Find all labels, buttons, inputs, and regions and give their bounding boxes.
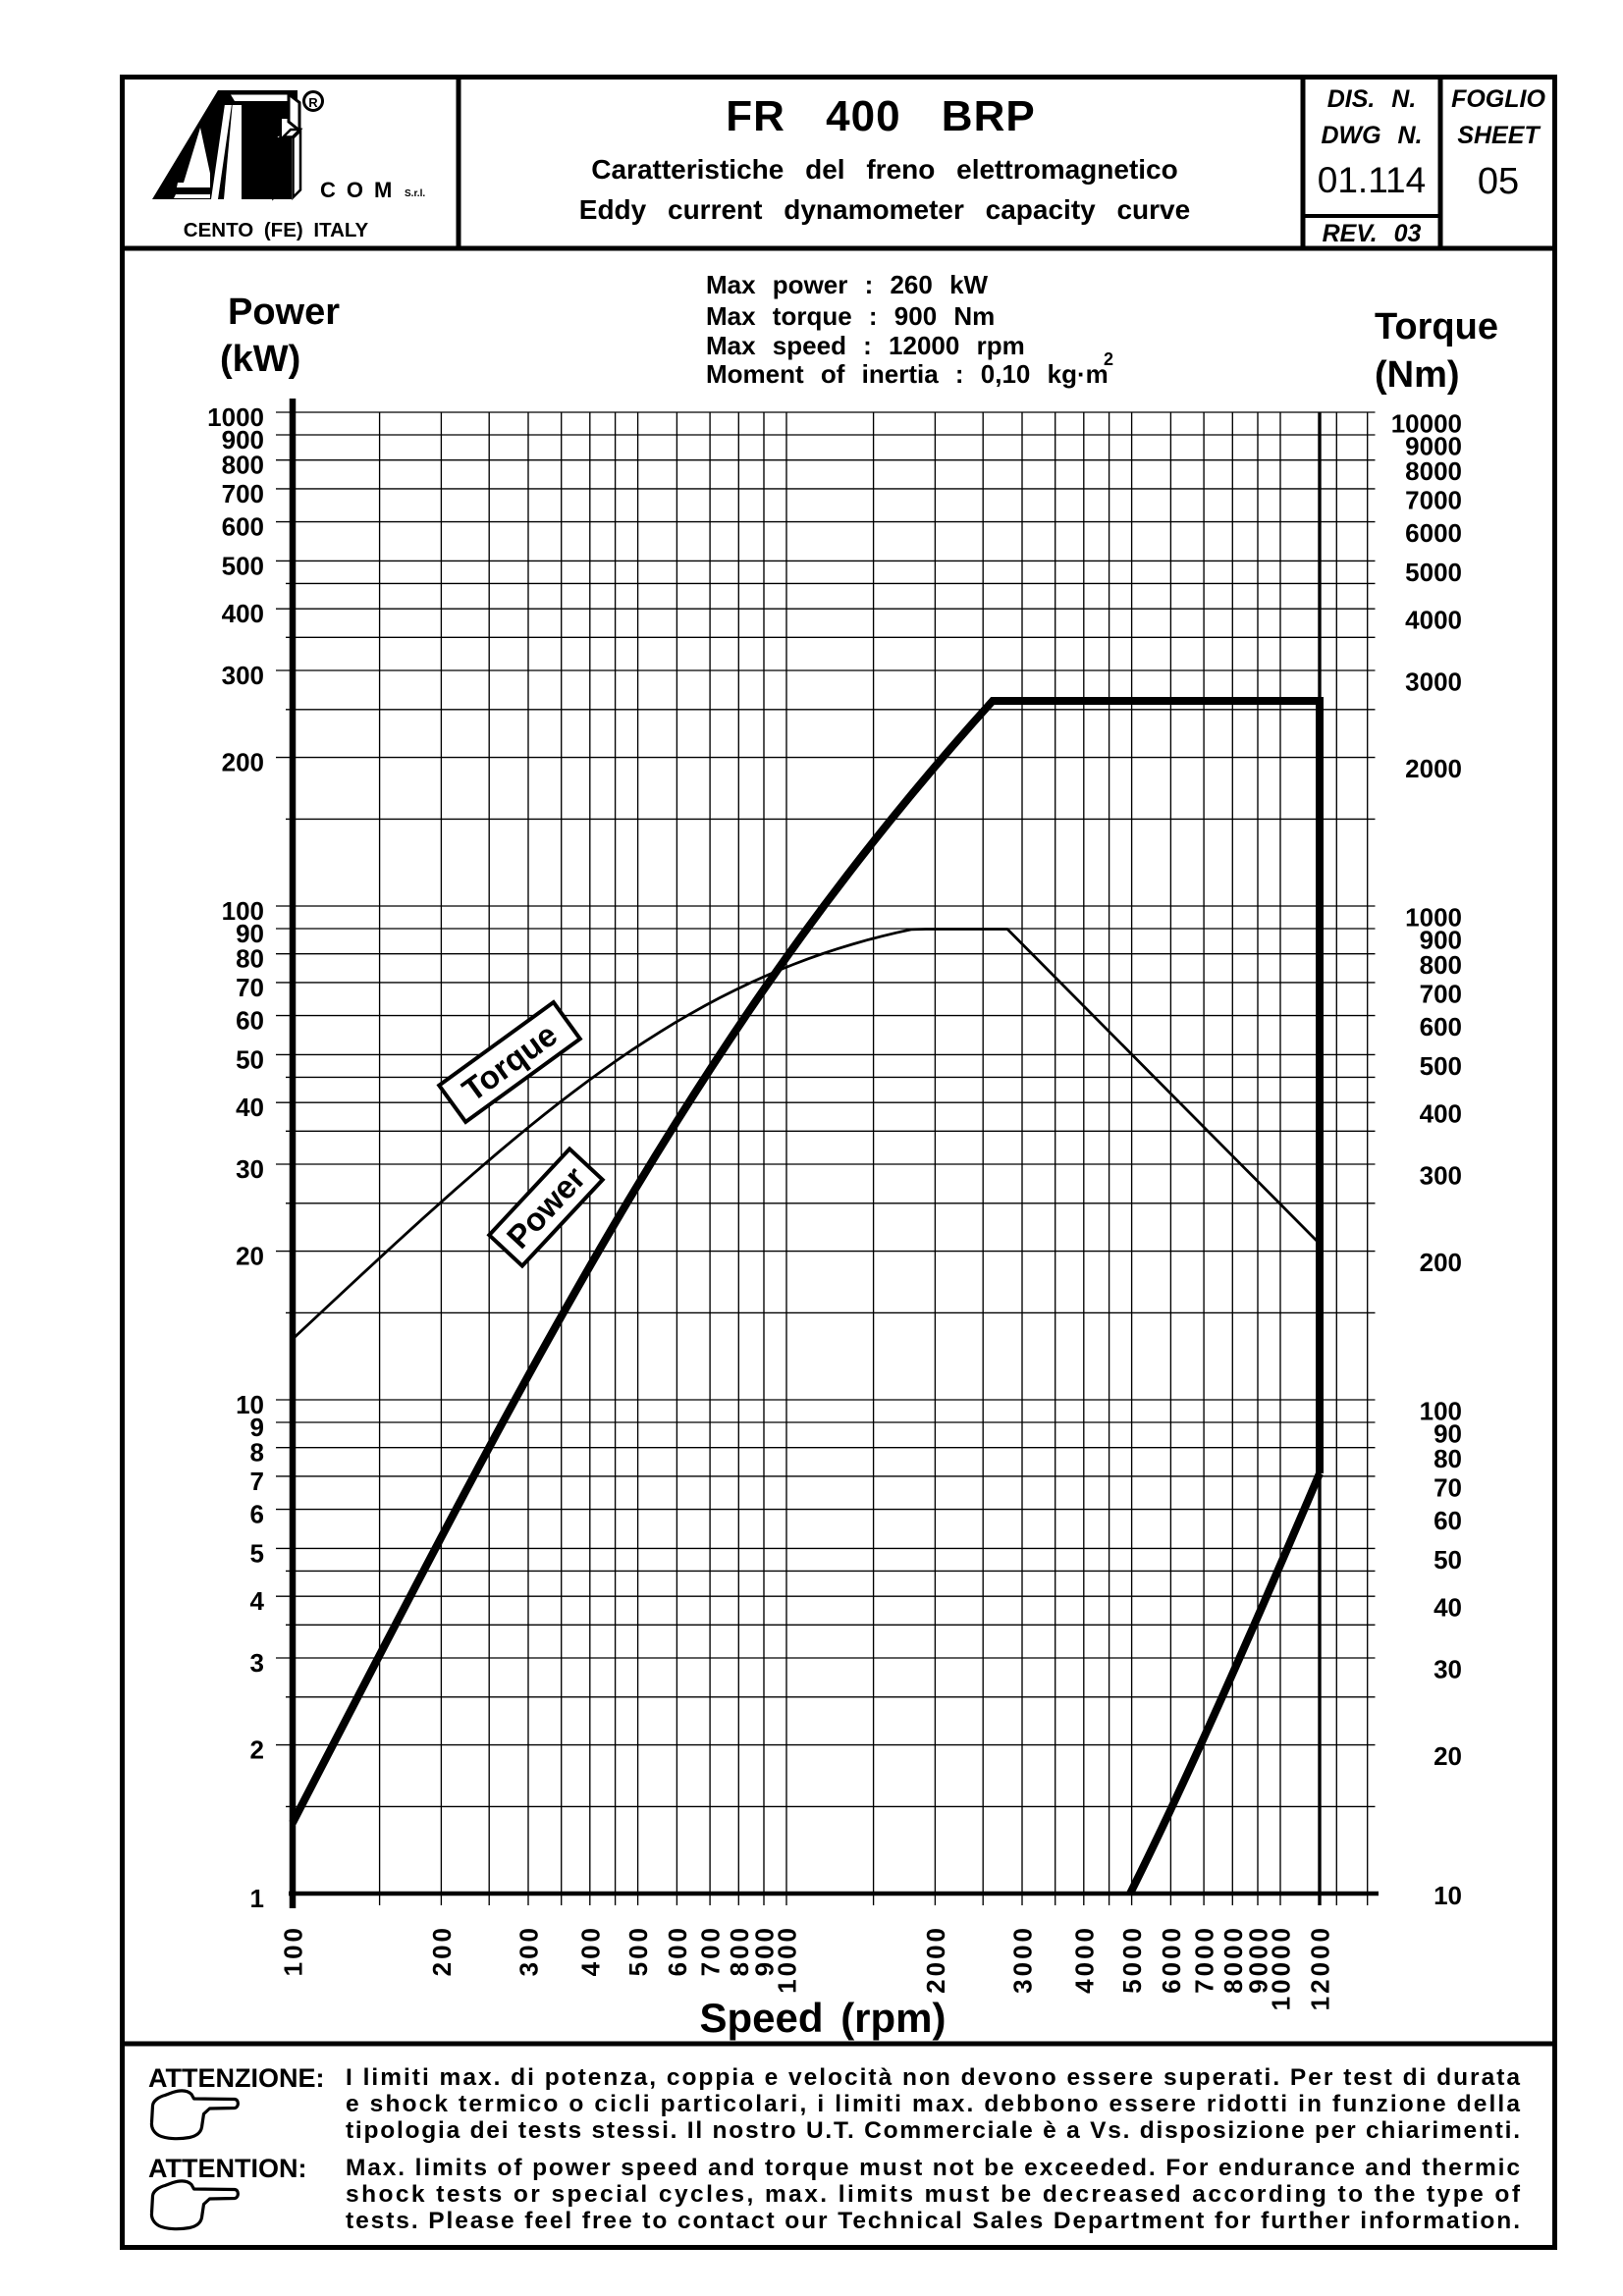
svg-text:20: 20 — [1434, 1741, 1462, 1771]
svg-text:SHEET: SHEET — [1457, 122, 1542, 149]
svg-text:2000: 2000 — [1405, 754, 1462, 783]
svg-text:Max torque : 900 Nm: Max torque : 900 Nm — [706, 301, 995, 331]
svg-text:Eddy current dynamometer capac: Eddy current dynamometer capacity curve — [579, 194, 1190, 225]
svg-text:70: 70 — [1434, 1472, 1462, 1502]
svg-text:700: 700 — [222, 479, 264, 508]
svg-text:80: 80 — [236, 944, 264, 974]
svg-text:50: 50 — [236, 1044, 264, 1074]
svg-text:400: 400 — [222, 599, 264, 628]
svg-text:6000: 6000 — [1405, 518, 1462, 548]
svg-text:tipologia dei tests stessi. Il: tipologia dei tests stessi. Il nostro U.… — [346, 2117, 1520, 2144]
svg-text:Moment of inertia : 0,10 kg·m: Moment of inertia : 0,10 kg·m — [706, 359, 1109, 389]
svg-text:800: 800 — [1420, 950, 1462, 980]
svg-text:Speed (rpm): Speed (rpm) — [699, 1995, 946, 2041]
svg-text:200: 200 — [1420, 1248, 1462, 1277]
svg-text:ATTENTION:: ATTENTION: — [148, 2154, 306, 2183]
svg-text:60: 60 — [236, 1006, 264, 1036]
svg-text:80: 80 — [1434, 1444, 1462, 1473]
svg-text:3: 3 — [250, 1648, 264, 1678]
svg-text:200: 200 — [427, 1925, 457, 1976]
svg-text:30: 30 — [1434, 1655, 1462, 1684]
svg-text:1: 1 — [250, 1884, 264, 1913]
svg-text:e shock termico o cicli partic: e shock termico o cicli particolari, i l… — [346, 2091, 1520, 2117]
svg-text:500: 500 — [623, 1925, 653, 1976]
svg-text:600: 600 — [222, 512, 264, 542]
svg-text:60: 60 — [1434, 1506, 1462, 1535]
svg-text:10000: 10000 — [1267, 1925, 1296, 2010]
svg-text:FOGLIO: FOGLIO — [1451, 85, 1545, 113]
svg-text:Max power : 260 kW: Max power : 260 kW — [706, 270, 989, 299]
svg-text:2000: 2000 — [921, 1925, 950, 1994]
svg-text:(Nm): (Nm) — [1375, 354, 1460, 396]
svg-text:8: 8 — [250, 1438, 264, 1468]
svg-text:2: 2 — [1104, 349, 1113, 369]
svg-text:70: 70 — [236, 973, 264, 1002]
svg-text:7000: 7000 — [1190, 1925, 1219, 1994]
svg-text:I limiti max. di potenza, copp: I limiti max. di potenza, coppia e veloc… — [346, 2064, 1520, 2091]
svg-text:300: 300 — [514, 1925, 544, 1976]
svg-text:(kW): (kW) — [220, 339, 300, 380]
svg-text:5000: 5000 — [1117, 1925, 1147, 1994]
svg-text:Max speed : 12000 rpm: Max speed : 12000 rpm — [706, 331, 1025, 360]
svg-text:400: 400 — [1420, 1099, 1462, 1129]
svg-text:shock tests or special cycles,: shock tests or special cycles, max. limi… — [346, 2181, 1521, 2208]
svg-text:8000: 8000 — [1405, 456, 1462, 486]
svg-text:50: 50 — [1434, 1545, 1462, 1575]
svg-text:S.r.l.: S.r.l. — [405, 188, 425, 199]
svg-text:4: 4 — [250, 1586, 265, 1616]
svg-text:600: 600 — [663, 1925, 692, 1976]
svg-text:100: 100 — [279, 1925, 308, 1976]
svg-text:1000: 1000 — [773, 1925, 802, 1994]
svg-text:5000: 5000 — [1405, 558, 1462, 587]
svg-text:12000: 12000 — [1305, 1925, 1334, 2010]
svg-text:20: 20 — [236, 1242, 264, 1271]
svg-text:Torque: Torque — [1375, 306, 1498, 347]
svg-text:FR 400 BRP: FR 400 BRP — [726, 92, 1035, 140]
svg-text:3000: 3000 — [1008, 1925, 1038, 1994]
svg-text:600: 600 — [1420, 1012, 1462, 1041]
svg-text:40: 40 — [1434, 1593, 1462, 1623]
svg-text:REV. 03: REV. 03 — [1323, 220, 1422, 247]
svg-text:3000: 3000 — [1405, 667, 1462, 697]
svg-text:800: 800 — [222, 451, 264, 480]
svg-text:500: 500 — [1420, 1051, 1462, 1081]
svg-text:Caratteristiche del freno elet: Caratteristiche del freno elettromagneti… — [591, 154, 1177, 185]
svg-text:CENTO (FE) ITALY: CENTO (FE) ITALY — [184, 219, 369, 241]
svg-text:10: 10 — [1434, 1881, 1462, 1910]
svg-text:300: 300 — [1420, 1161, 1462, 1191]
svg-text:500: 500 — [222, 551, 264, 580]
svg-text:30: 30 — [236, 1154, 264, 1184]
svg-text:01.114: 01.114 — [1318, 160, 1426, 200]
svg-text:2: 2 — [250, 1735, 264, 1765]
svg-text:6: 6 — [250, 1500, 264, 1529]
svg-text:6000: 6000 — [1157, 1925, 1186, 1994]
svg-text:DWG N.: DWG N. — [1321, 122, 1422, 149]
svg-text:05: 05 — [1478, 161, 1519, 202]
svg-text:40: 40 — [236, 1093, 264, 1122]
svg-text:COM: COM — [320, 178, 403, 202]
svg-text:7000: 7000 — [1405, 485, 1462, 514]
svg-text:5: 5 — [250, 1538, 264, 1568]
svg-text:4000: 4000 — [1405, 606, 1462, 635]
svg-text:4000: 4000 — [1069, 1925, 1099, 1994]
svg-text:700: 700 — [696, 1925, 726, 1976]
svg-text:7: 7 — [250, 1467, 264, 1496]
svg-text:Max. limits of power speed and: Max. limits of power speed and torque mu… — [346, 2155, 1520, 2181]
svg-text:Power: Power — [228, 292, 340, 333]
svg-text:R: R — [308, 95, 318, 110]
svg-text:ATTENZIONE:: ATTENZIONE: — [148, 2063, 324, 2093]
svg-text:400: 400 — [575, 1925, 605, 1976]
svg-text:300: 300 — [222, 661, 264, 690]
svg-text:200: 200 — [222, 748, 264, 777]
svg-text:tests. Please feel free to con: tests. Please feel free to contact our T… — [346, 2208, 1520, 2234]
svg-text:700: 700 — [1420, 979, 1462, 1008]
svg-text:DIS. N.: DIS. N. — [1327, 85, 1417, 113]
